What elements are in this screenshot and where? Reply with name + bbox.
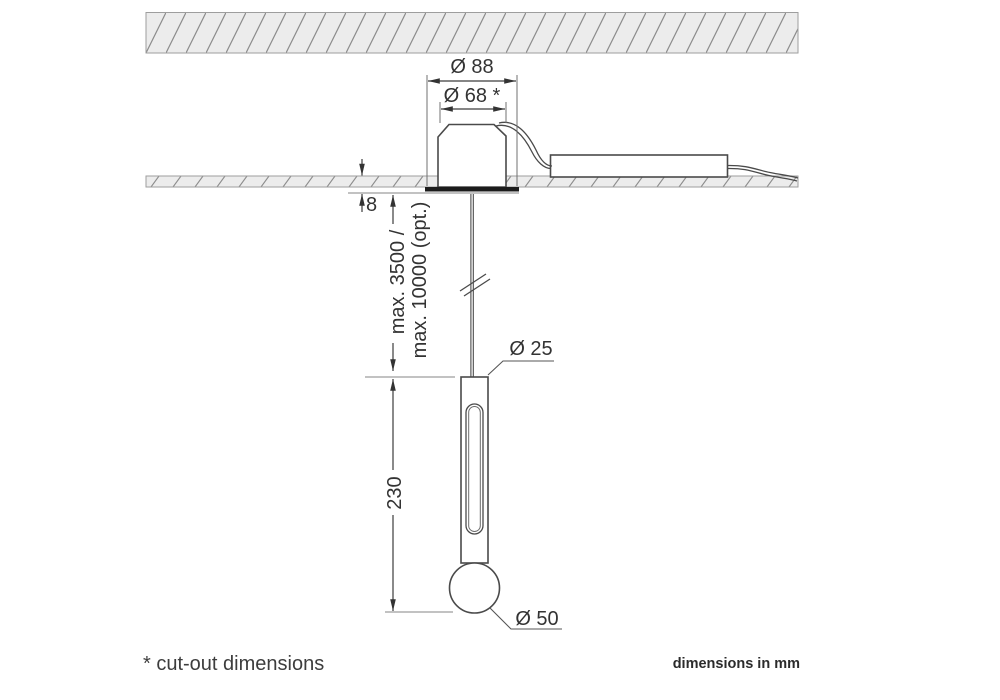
recessed-housing xyxy=(438,125,506,188)
dim-recess-depth-label: 8 xyxy=(366,194,377,216)
trim-ring xyxy=(425,187,519,192)
dim-housing-outer-label: Ø 88 xyxy=(450,56,493,78)
dim-suspension-label-line2: max. 10000 (opt.) xyxy=(409,202,431,359)
dim-cutout: Ø 68 * xyxy=(440,85,506,123)
dim-suspension-label-line1: max. 3500 / xyxy=(387,229,409,334)
leader-sphere-diameter: Ø 50 xyxy=(490,608,562,630)
diffuser-sphere xyxy=(450,563,500,613)
units-note: dimensions in mm xyxy=(673,656,800,672)
dim-body-length: 230 xyxy=(384,379,453,612)
dim-suspension-length: max. 3500 / max. 10000 (opt.) xyxy=(387,195,431,371)
leader-tube-diameter: Ø 25 xyxy=(488,338,554,375)
pendant-tube xyxy=(461,377,488,563)
cable-break-icon xyxy=(460,274,490,296)
driver-box xyxy=(551,155,728,177)
dim-cutout-label: Ø 68 * xyxy=(444,85,501,107)
suspension-cable xyxy=(471,194,473,377)
dim-body-length-label: 230 xyxy=(384,476,406,509)
pendant-luminaire-dimension-drawing: Ø 88 Ø 68 * 8 max. 3500 / max. 10000 (op… xyxy=(0,0,1000,700)
ceiling-slab xyxy=(146,13,798,54)
cutout-footnote: * cut-out dimensions xyxy=(143,653,324,675)
technical-drawing-page: Ø 88 Ø 68 * 8 max. 3500 / max. 10000 (op… xyxy=(0,0,1000,700)
dim-tube-diameter-label: Ø 25 xyxy=(509,338,552,360)
dim-sphere-diameter-label: Ø 50 xyxy=(515,608,558,630)
